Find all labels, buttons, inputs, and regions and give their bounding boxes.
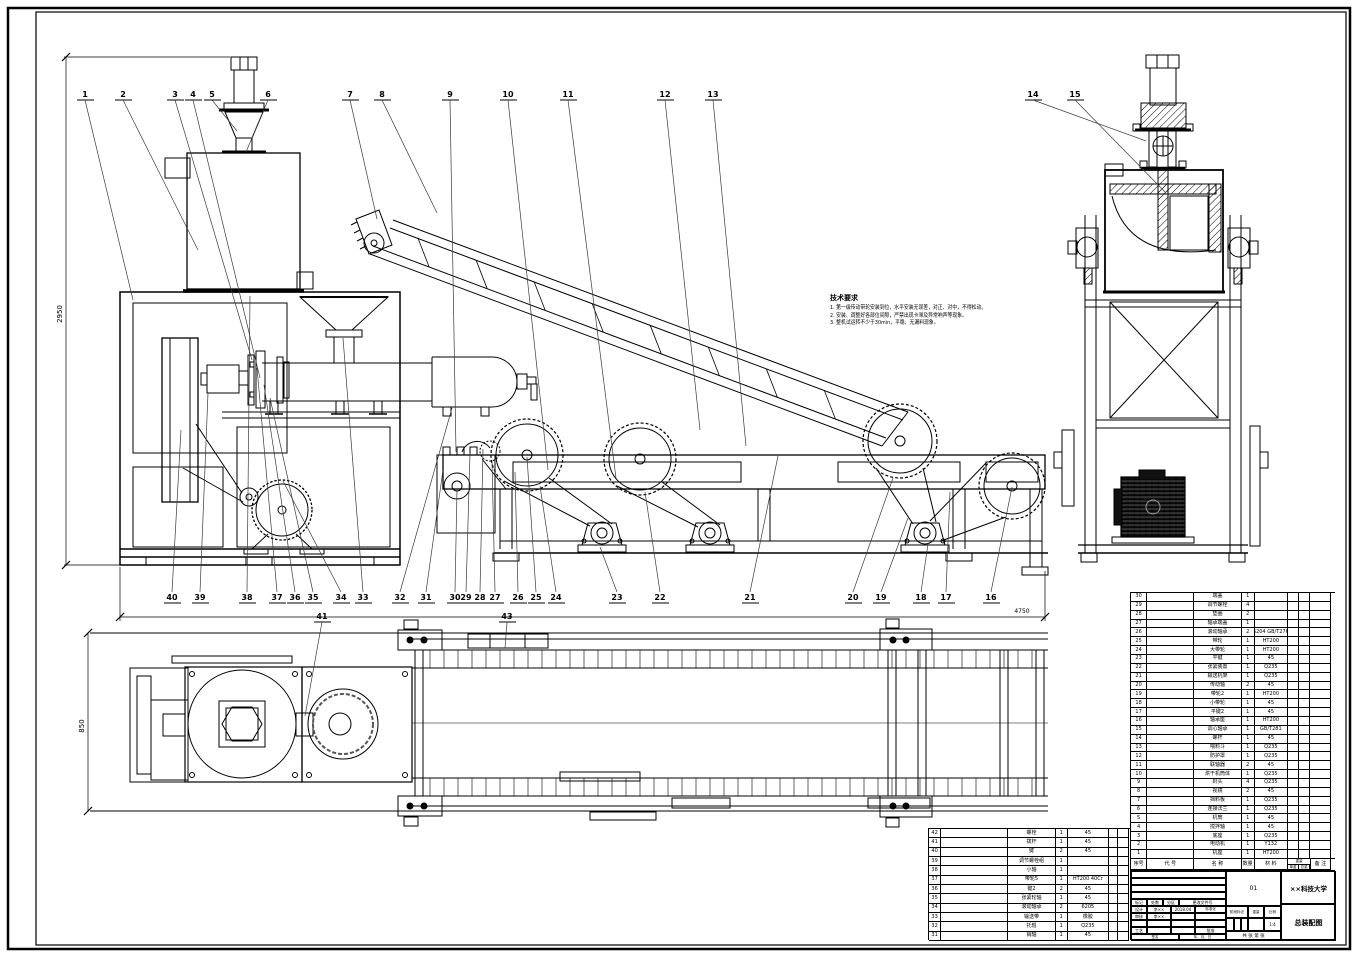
parts-cell — [1310, 806, 1331, 815]
callout-12: 12 — [657, 90, 700, 430]
parts-cell — [1288, 752, 1299, 761]
parts-cell — [1068, 866, 1109, 875]
parts-cell: 1 — [1242, 717, 1255, 726]
rev-count-label: 处数 — [1147, 899, 1163, 906]
parts-cell — [1299, 628, 1310, 637]
parts-cell — [1147, 797, 1194, 806]
parts-row: 2电动机1Y132 — [1131, 841, 1335, 850]
parts-cell: 调心轴承 — [1194, 726, 1241, 735]
callout-label: 32 — [394, 593, 405, 602]
parts-cell: 32 — [929, 922, 941, 931]
parts-cell — [1147, 752, 1194, 761]
parts-cell — [1299, 832, 1310, 841]
parts-row: 25带轮1HT200 — [1131, 637, 1335, 646]
side-view — [1054, 55, 1268, 562]
parts-cell: 19 — [1131, 690, 1147, 699]
parts-cell — [1310, 841, 1331, 850]
parts-cell: 封头 — [1194, 779, 1241, 788]
parts-header-cell: 材 料 — [1255, 859, 1288, 870]
parts-header-cell: 数量 — [1242, 859, 1255, 870]
parts-cell — [1288, 717, 1299, 726]
parts-cell: 37 — [929, 876, 941, 885]
parts-cell — [1288, 628, 1299, 637]
date-label: 年、月、日 — [1179, 934, 1226, 941]
parts-cell — [1288, 646, 1299, 655]
callout-39: 39 — [192, 393, 209, 603]
parts-cell: Q235 — [1068, 922, 1109, 931]
parts-row: 24大带轮1HT200 — [1131, 646, 1335, 655]
parts-row: 35张紧轮轴145 — [929, 894, 1130, 903]
parts-cell: 45 — [1068, 932, 1109, 941]
parts-cell — [1068, 857, 1109, 866]
parts-cell: 1 — [1242, 823, 1255, 832]
parts-cell — [1147, 655, 1194, 664]
parts-cell: 调节螺栓 — [1194, 602, 1241, 611]
parts-cell: 6 — [1131, 806, 1147, 815]
parts-cell — [1147, 620, 1194, 629]
parts-cell — [1310, 620, 1331, 629]
parts-cell — [1147, 690, 1194, 699]
parts-cell — [1118, 876, 1129, 885]
parts-row: 3底座1Q235 — [1131, 832, 1335, 841]
callout-label: 16 — [985, 593, 997, 602]
parts-cell — [941, 848, 1008, 857]
parts-cell — [1118, 857, 1129, 866]
design-date: 2018.04 — [1171, 906, 1195, 913]
parts-cell: 键 — [1008, 848, 1055, 857]
rev-zone-label: 分区 — [1163, 899, 1179, 906]
parts-cell — [1288, 611, 1299, 620]
callout-label: 15 — [1069, 90, 1081, 99]
organization: ××科技大学 — [1281, 871, 1336, 904]
callout-label: 36 — [289, 593, 301, 602]
parts-cell — [1147, 593, 1194, 602]
parts-cell: HT200 40Cr — [1068, 876, 1109, 885]
parts-cell — [1299, 806, 1310, 815]
parts-cell: 1 — [1242, 593, 1255, 602]
parts-cell: 45 — [1255, 814, 1288, 823]
callout-label: 5 — [209, 90, 215, 99]
parts-cell — [1109, 829, 1118, 838]
parts-cell: 2 — [1242, 761, 1255, 770]
parts-cell: 连接法兰 — [1194, 806, 1241, 815]
parts-cell — [1288, 620, 1299, 629]
parts-cell — [1147, 646, 1194, 655]
parts-row: 37带轮51HT200 40Cr — [929, 876, 1130, 885]
parts-cell: 2 — [1242, 788, 1255, 797]
parts-cell: 13 — [1131, 744, 1147, 753]
parts-row: 8视镜245 — [1131, 788, 1335, 797]
scale-value: 1:4 — [1264, 918, 1281, 931]
parts-row: 23平键145 — [1131, 655, 1335, 664]
parts-header-row: 序号代 号名 称数量材 料重量单重总重备 注 — [1131, 859, 1335, 870]
parts-cell — [1147, 726, 1194, 735]
parts-cell: 轴承座 — [1194, 717, 1241, 726]
parts-cell: 12 — [1131, 752, 1147, 761]
parts-cell: Q235 — [1255, 770, 1288, 779]
parts-cell: 轴承端盖 — [1194, 620, 1241, 629]
main-view-frame — [120, 292, 432, 565]
parts-cell — [1299, 682, 1310, 691]
parts-row: 42螺栓145 — [929, 829, 1130, 838]
parts-cell: 11 — [1131, 761, 1147, 770]
parts-cell — [1109, 894, 1118, 903]
bearing-block-2 — [686, 522, 734, 552]
parts-cell: 平键2 — [1194, 708, 1241, 717]
motor — [1112, 470, 1194, 543]
callout-31: 31 — [418, 470, 443, 603]
callout-25: 25 — [527, 457, 545, 603]
parts-cell — [1310, 752, 1331, 761]
parts-cell: 18 — [1131, 699, 1147, 708]
parts-cell — [1147, 841, 1194, 850]
callout-label: 30 — [449, 593, 461, 602]
parts-cell — [1109, 913, 1118, 922]
parts-cell: 带轮5 — [1008, 876, 1055, 885]
callout-33: 33 — [343, 338, 372, 603]
parts-cell — [1299, 779, 1310, 788]
parts-cell: 28 — [1131, 611, 1147, 620]
parts-row: 10烘干机筒体1Q235 — [1131, 770, 1335, 779]
parts-cell — [1288, 797, 1299, 806]
callout-label: 23 — [611, 593, 622, 602]
drawing-code: 01 — [1226, 871, 1281, 906]
callout-30: 30 — [447, 489, 464, 603]
designer-name: 李×× — [1147, 906, 1171, 913]
parts-cell — [1310, 602, 1331, 611]
parts-cell: 小轴 — [1008, 866, 1055, 875]
parts-cell: 1 — [1056, 932, 1068, 941]
parts-cell: 2 — [1056, 848, 1068, 857]
callout-label: 28 — [474, 593, 486, 602]
parts-row: 12防护罩1Q235 — [1131, 752, 1335, 761]
parts-cell — [1299, 717, 1310, 726]
parts-cell: 1 — [1056, 857, 1068, 866]
parts-row: 16轴承座1HT200 — [1131, 717, 1335, 726]
callout-label: 13 — [707, 90, 718, 99]
parts-cell — [1299, 797, 1310, 806]
parts-cell: 4 — [1242, 779, 1255, 788]
callout-label: 25 — [530, 593, 542, 602]
parts-cell: 45 — [1255, 708, 1288, 717]
callout-label: 8 — [379, 90, 385, 99]
parts-cell — [1109, 885, 1118, 894]
parts-cell — [1288, 690, 1299, 699]
parts-cell: 23 — [1131, 655, 1147, 664]
parts-cell — [1147, 814, 1194, 823]
weight-label: 重量 — [1248, 906, 1264, 918]
parts-cell: 17 — [1131, 708, 1147, 717]
callout-label: 7 — [347, 90, 353, 99]
callout-24: 24 — [540, 486, 565, 603]
parts-cell — [1288, 744, 1299, 753]
rev-mark-label: 标记 — [1131, 899, 1147, 906]
parts-cell: 拨杆 — [1008, 838, 1055, 847]
parts-cell — [1147, 806, 1194, 815]
parts-cell: 1 — [1242, 664, 1255, 673]
callout-label: 4 — [190, 90, 196, 99]
parts-cell — [1288, 823, 1299, 832]
parts-cell: 1 — [1056, 894, 1068, 903]
parts-cell — [1147, 699, 1194, 708]
callout-label: 33 — [357, 593, 368, 602]
parts-cell — [1118, 866, 1129, 875]
parts-cell — [1147, 788, 1194, 797]
parts-cell — [1288, 708, 1299, 717]
callout-label: 26 — [512, 593, 524, 602]
parts-cell — [1118, 932, 1129, 941]
parts-cell: 1 — [1242, 690, 1255, 699]
parts-cell — [1255, 620, 1288, 629]
parts-cell — [1147, 761, 1194, 770]
parts-cell: 1 — [1242, 814, 1255, 823]
parts-cell — [1299, 823, 1310, 832]
parts-cell — [1147, 611, 1194, 620]
parts-row: 14螺杆145 — [1131, 735, 1335, 744]
parts-row: 31销轴145 — [929, 932, 1130, 941]
parts-cell: 45 — [1255, 699, 1288, 708]
parts-cell: HT200 — [1255, 637, 1288, 646]
parts-cell — [1288, 814, 1299, 823]
parts-cell: 45 — [1255, 761, 1288, 770]
parts-row: 33输送带1橡胶 — [929, 913, 1130, 922]
parts-cell — [1310, 832, 1331, 841]
parts-header-remark: 备 注 — [1311, 859, 1331, 870]
parts-row: 5机筒145 — [1131, 814, 1335, 823]
dim-main-length: 4750 — [1014, 608, 1029, 615]
callout-label: 11 — [562, 90, 574, 99]
callout-17: 17 — [938, 492, 955, 603]
parts-cell: 34 — [929, 904, 941, 913]
standard-label: 标准化 — [1195, 906, 1226, 913]
callout-label: 27 — [489, 593, 500, 602]
dim-plan-width: 850 — [78, 719, 86, 732]
approve-label: 批准 — [1195, 927, 1226, 934]
scale-label: 比例 — [1264, 906, 1281, 918]
parts-cell — [1310, 611, 1331, 620]
parts-cell — [1109, 876, 1118, 885]
parts-cell — [1109, 866, 1118, 875]
parts-cell — [1118, 848, 1129, 857]
parts-cell: 橡胶 — [1068, 913, 1109, 922]
parts-cell: 1 — [1056, 829, 1068, 838]
parts-list-right: 30端盖129调节螺栓428垫圈227轴承端盖126滚动轴承26204 GB/T… — [1130, 592, 1335, 858]
callout-label: 38 — [241, 593, 253, 602]
parts-cell: 29 — [1131, 602, 1147, 611]
callout-40: 40 — [164, 430, 181, 603]
parts-cell — [1147, 770, 1194, 779]
parts-row: 17平键2145 — [1131, 708, 1335, 717]
callout-7: 7 — [342, 90, 377, 219]
parts-cell — [941, 876, 1008, 885]
parts-row: 9封头4Q235 — [1131, 779, 1335, 788]
parts-cell: 10 — [1131, 770, 1147, 779]
parts-cell: GB/T281 — [1255, 726, 1288, 735]
parts-cell: 1 — [1242, 797, 1255, 806]
parts-cell — [1310, 823, 1331, 832]
parts-cell — [1299, 708, 1310, 717]
main-view-mixer — [165, 57, 313, 291]
parts-cell: 1 — [1056, 866, 1068, 875]
callout-2: 2 — [115, 90, 198, 250]
parts-cell: 45 — [1255, 682, 1288, 691]
parts-cell — [1299, 611, 1310, 620]
parts-cell: HT200 — [1255, 690, 1288, 699]
technical-notes: 技术要求 1. 第一级传动带轮安装到位，水平安装无误差，对正、对中，不得松动。2… — [830, 293, 1020, 328]
parts-cell — [1299, 744, 1310, 753]
callout-label: 20 — [847, 593, 859, 602]
parts-cell — [1310, 690, 1331, 699]
parts-cell: 22 — [1131, 664, 1147, 673]
parts-cell — [1288, 637, 1299, 646]
parts-cell — [1147, 832, 1194, 841]
parts-cell: 4 — [1242, 602, 1255, 611]
parts-cell — [1288, 699, 1299, 708]
callout-28: 28 — [472, 449, 489, 603]
parts-cell: 33 — [929, 913, 941, 922]
parts-cell — [1147, 779, 1194, 788]
parts-cell — [1299, 761, 1310, 770]
parts-cell: 27 — [1131, 620, 1147, 629]
parts-cell — [1299, 841, 1310, 850]
parts-cell — [1255, 593, 1288, 602]
parts-row: 4搅拌轴145 — [1131, 823, 1335, 832]
parts-cell: 挡料板 — [1194, 797, 1241, 806]
parts-cell — [941, 885, 1008, 894]
parts-cell — [1310, 779, 1331, 788]
callout-35: 35 — [270, 398, 322, 603]
parts-row: 32托辊1Q235 — [929, 922, 1130, 931]
dim-main-height: 2950 — [56, 305, 64, 323]
parts-cell: 托辊 — [1008, 922, 1055, 931]
parts-cell — [1288, 673, 1299, 682]
parts-cell — [1299, 620, 1310, 629]
parts-row: 6连接法兰1Q235 — [1131, 806, 1335, 815]
dimension-labels: 2950 4750 850 — [56, 305, 1030, 733]
parts-cell: 螺杆 — [1194, 735, 1241, 744]
parts-cell — [1299, 673, 1310, 682]
parts-row: 19带轮21HT200 — [1131, 690, 1335, 699]
parts-cell — [1310, 770, 1331, 779]
parts-cell — [1299, 752, 1310, 761]
parts-cell: 1 — [1242, 832, 1255, 841]
callout-1: 1 — [77, 90, 133, 300]
parts-cell: 滚动轴承 — [1008, 904, 1055, 913]
parts-cell — [941, 922, 1008, 931]
parts-cell: 45 — [1068, 838, 1109, 847]
callout-8: 8 — [374, 90, 437, 213]
parts-cell — [1147, 717, 1194, 726]
parts-cell — [1118, 829, 1129, 838]
parts-cell — [1288, 832, 1299, 841]
callout-label: 18 — [915, 593, 927, 602]
parts-cell — [1118, 894, 1129, 903]
main-view-tank — [432, 357, 537, 416]
parts-cell — [1147, 673, 1194, 682]
callout-label: 1 — [82, 90, 88, 99]
parts-cell: Q235 — [1255, 797, 1288, 806]
callout-41: 41 — [305, 612, 331, 716]
parts-row: 15调心轴承1GB/T281 — [1131, 726, 1335, 735]
parts-cell — [941, 932, 1008, 941]
parts-cell — [1310, 744, 1331, 753]
parts-cell — [1310, 726, 1331, 735]
parts-cell: 传动轴 — [1194, 682, 1241, 691]
parts-cell — [1299, 735, 1310, 744]
parts-cell: 1 — [1242, 752, 1255, 761]
parts-cell: 1 — [1242, 770, 1255, 779]
parts-cell: 调节螺栓组 — [1008, 857, 1055, 866]
parts-cell — [1310, 717, 1331, 726]
parts-cell — [1288, 682, 1299, 691]
callout-label: 34 — [335, 593, 347, 602]
parts-row: 27轴承端盖1 — [1131, 620, 1335, 629]
notes-line: 1. 第一级传动带轮安装到位，水平安装无误差，对正、对中，不得松动。 — [830, 305, 997, 313]
parts-cell: 14 — [1131, 735, 1147, 744]
parts-cell — [1147, 664, 1194, 673]
callout-23: 23 — [600, 547, 626, 603]
callout-9: 9 — [442, 90, 459, 452]
parts-cell: 带轮 — [1194, 637, 1241, 646]
parts-cell: 1 — [1242, 806, 1255, 815]
callout-label: 24 — [550, 593, 562, 602]
parts-cell — [1310, 655, 1331, 664]
parts-cell: Q235 — [1255, 832, 1288, 841]
parts-row: 21输送机架1Q235 — [1131, 673, 1335, 682]
parts-cell: 垫圈 — [1194, 611, 1241, 620]
callout-32: 32 — [392, 408, 452, 603]
parts-cell — [941, 913, 1008, 922]
parts-header-cell: 名 称 — [1194, 859, 1241, 870]
parts-cell — [1299, 637, 1310, 646]
callout-label: 39 — [194, 593, 206, 602]
parts-cell — [1310, 735, 1331, 744]
parts-cell — [1288, 841, 1299, 850]
parts-row: 18小带轮145 — [1131, 699, 1335, 708]
parts-cell — [1147, 602, 1194, 611]
parts-cell: 1 — [1242, 735, 1255, 744]
parts-cell — [1109, 838, 1118, 847]
callout-label: 40 — [166, 593, 178, 602]
sprocket-4 — [979, 453, 1045, 519]
parts-cell: 烘干机筒体 — [1194, 770, 1241, 779]
parts-cell — [1109, 848, 1118, 857]
parts-cell: Y132 — [1255, 841, 1288, 850]
parts-cell: 30 — [1131, 593, 1147, 602]
parts-cell — [1147, 637, 1194, 646]
parts-cell — [1118, 838, 1129, 847]
parts-cell: 31 — [929, 932, 941, 941]
parts-cell — [1299, 770, 1310, 779]
parts-cell — [1288, 761, 1299, 770]
parts-cell — [1288, 726, 1299, 735]
parts-cell: 8 — [1131, 788, 1147, 797]
parts-cell: 41 — [929, 838, 941, 847]
parts-cell — [1147, 744, 1194, 753]
parts-cell — [1299, 602, 1310, 611]
parts-cell: 防护罩 — [1194, 752, 1241, 761]
parts-cell: 销轴 — [1008, 932, 1055, 941]
parts-cell: 42 — [929, 829, 941, 838]
checker-name: 李×× — [1147, 913, 1171, 920]
parts-row: 7挡料板1Q235 — [1131, 797, 1335, 806]
parts-cell: 张紧轮轴 — [1008, 894, 1055, 903]
parts-cell: 35 — [929, 894, 941, 903]
callout-label: 17 — [940, 593, 951, 602]
parts-cell: HT200 — [1255, 717, 1288, 726]
parts-cell: 带轮2 — [1194, 690, 1241, 699]
notes-line: 2. 安装、调整好各部位间隙，严禁出现卡滞及异常响声等现象。 — [830, 313, 997, 321]
